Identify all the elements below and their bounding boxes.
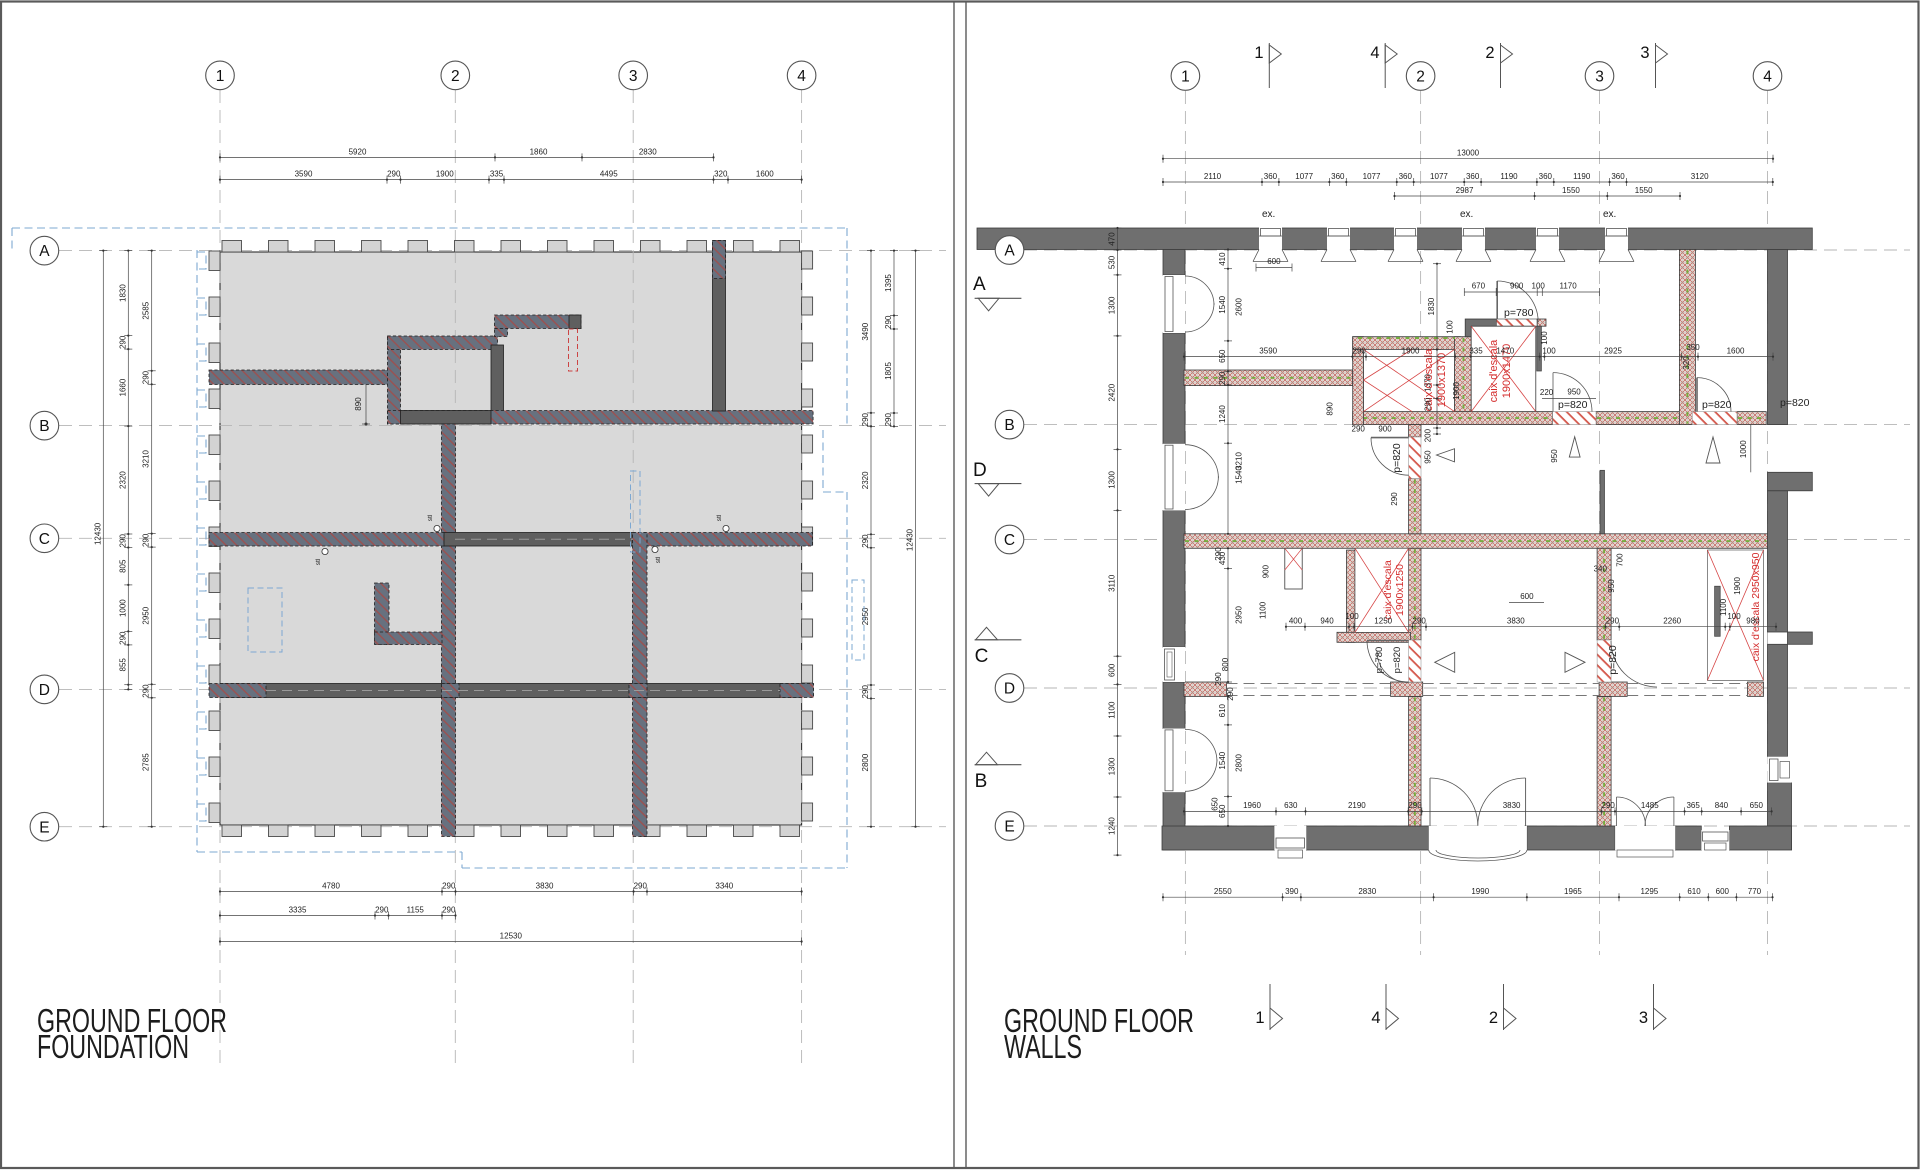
- svg-text:1990: 1990: [1471, 887, 1489, 896]
- svg-text:1077: 1077: [1363, 172, 1381, 181]
- svg-text:360: 360: [1611, 172, 1625, 181]
- svg-text:3830: 3830: [1507, 617, 1525, 626]
- svg-text:650: 650: [1218, 349, 1227, 363]
- svg-text:stl: stl: [716, 514, 723, 521]
- svg-text:100: 100: [1542, 346, 1556, 355]
- svg-text:1250: 1250: [1374, 617, 1392, 626]
- svg-text:1240: 1240: [1108, 817, 1117, 835]
- svg-text:1295: 1295: [1640, 887, 1658, 896]
- svg-text:3110: 3110: [1108, 574, 1117, 592]
- svg-text:600: 600: [1520, 592, 1534, 601]
- svg-text:1190: 1190: [1500, 172, 1518, 181]
- svg-text:1900x1250: 1900x1250: [1394, 564, 1406, 616]
- svg-text:FOUNDATION: FOUNDATION: [37, 1029, 189, 1066]
- svg-text:2420: 2420: [1108, 383, 1117, 401]
- svg-text:stl: stl: [315, 558, 322, 565]
- svg-text:1540: 1540: [1218, 751, 1227, 769]
- svg-text:610: 610: [1218, 703, 1227, 717]
- svg-text:650: 650: [1210, 797, 1219, 811]
- svg-text:335: 335: [490, 170, 504, 179]
- svg-text:290: 290: [1226, 687, 1235, 701]
- svg-text:290: 290: [634, 882, 648, 891]
- svg-text:290: 290: [118, 335, 127, 349]
- svg-text:290: 290: [1424, 397, 1433, 411]
- svg-text:1540: 1540: [1235, 466, 1244, 484]
- svg-text:D: D: [39, 682, 50, 699]
- svg-text:C: C: [1004, 532, 1015, 549]
- svg-text:p=820: p=820: [1702, 399, 1732, 411]
- svg-text:1: 1: [216, 68, 225, 85]
- svg-text:stl: stl: [655, 556, 662, 563]
- svg-text:5920: 5920: [349, 147, 367, 156]
- svg-text:290: 290: [1606, 617, 1620, 626]
- svg-text:stl: stl: [427, 514, 434, 521]
- svg-text:290: 290: [1214, 547, 1223, 561]
- svg-text:2320: 2320: [861, 471, 870, 489]
- svg-text:3830: 3830: [1503, 801, 1521, 810]
- svg-text:290: 290: [142, 370, 151, 384]
- svg-text:290: 290: [1413, 617, 1427, 626]
- svg-text:100: 100: [1727, 612, 1741, 621]
- svg-text:1805: 1805: [884, 362, 893, 380]
- svg-text:360: 360: [1264, 172, 1278, 181]
- svg-text:1540: 1540: [1218, 295, 1227, 313]
- svg-text:3120: 3120: [1691, 172, 1709, 181]
- svg-text:1: 1: [1255, 1009, 1264, 1027]
- svg-text:D: D: [1004, 681, 1015, 698]
- svg-text:E: E: [1004, 819, 1014, 836]
- svg-text:390: 390: [1285, 887, 1299, 896]
- svg-text:1485: 1485: [1641, 801, 1659, 810]
- svg-text:2: 2: [1416, 69, 1425, 86]
- svg-text:2600: 2600: [1235, 298, 1244, 316]
- svg-text:p=780: p=780: [1374, 647, 1385, 674]
- svg-text:670: 670: [1472, 281, 1486, 290]
- svg-text:320: 320: [714, 170, 728, 179]
- svg-text:290: 290: [142, 533, 151, 547]
- svg-text:2800: 2800: [1235, 754, 1244, 772]
- svg-text:950: 950: [1550, 449, 1559, 463]
- svg-text:290: 290: [1602, 801, 1616, 810]
- svg-text:290: 290: [1408, 801, 1422, 810]
- svg-text:940: 940: [1320, 617, 1334, 626]
- svg-text:900: 900: [1378, 425, 1392, 434]
- svg-text:360: 360: [1466, 172, 1480, 181]
- svg-text:630: 630: [1284, 801, 1298, 810]
- svg-text:290: 290: [861, 412, 870, 426]
- svg-text:B: B: [39, 418, 49, 435]
- svg-text:p=820: p=820: [1607, 645, 1619, 675]
- svg-text:1077: 1077: [1430, 172, 1448, 181]
- svg-text:600: 600: [1108, 663, 1117, 677]
- svg-text:900: 900: [1262, 564, 1271, 578]
- svg-text:2785: 2785: [142, 753, 151, 771]
- svg-text:A: A: [973, 274, 986, 295]
- svg-text:p=820: p=820: [1780, 397, 1810, 409]
- svg-text:600: 600: [1716, 887, 1730, 896]
- svg-text:3210: 3210: [142, 450, 151, 468]
- svg-text:caix d'escala 2950x950: caix d'escala 2950x950: [1750, 552, 1762, 661]
- svg-text:4: 4: [1370, 44, 1379, 62]
- svg-text:1100: 1100: [1259, 601, 1268, 619]
- svg-text:650: 650: [1750, 801, 1764, 810]
- svg-text:A: A: [39, 243, 50, 260]
- svg-text:A: A: [1004, 243, 1015, 260]
- svg-text:WALLS: WALLS: [1004, 1029, 1082, 1066]
- svg-text:360: 360: [1331, 172, 1345, 181]
- svg-text:290: 290: [118, 534, 127, 548]
- svg-text:2550: 2550: [1214, 887, 1232, 896]
- svg-text:600: 600: [1267, 257, 1281, 266]
- svg-text:290: 290: [375, 906, 389, 915]
- svg-text:290: 290: [1218, 371, 1227, 385]
- svg-text:1170: 1170: [1559, 281, 1577, 290]
- svg-text:2260: 2260: [1663, 617, 1681, 626]
- svg-text:290: 290: [1214, 672, 1223, 686]
- svg-text:1900: 1900: [1733, 577, 1742, 595]
- svg-text:1: 1: [1181, 69, 1190, 86]
- svg-text:290: 290: [884, 315, 893, 329]
- svg-text:290: 290: [884, 412, 893, 426]
- svg-text:3: 3: [1595, 69, 1604, 86]
- svg-text:1470: 1470: [1496, 346, 1514, 355]
- svg-text:ex.: ex.: [1460, 209, 1473, 220]
- svg-text:2830: 2830: [639, 147, 657, 156]
- svg-text:p=820: p=820: [1392, 647, 1403, 674]
- svg-text:800: 800: [1221, 657, 1230, 671]
- svg-text:1300: 1300: [1108, 296, 1117, 314]
- svg-text:3490: 3490: [861, 322, 870, 340]
- svg-text:1965: 1965: [1564, 887, 1582, 896]
- svg-text:100: 100: [1345, 612, 1359, 621]
- svg-text:290: 290: [118, 631, 127, 645]
- svg-text:290: 290: [1390, 492, 1399, 506]
- svg-text:290: 290: [442, 906, 456, 915]
- svg-text:200: 200: [1424, 428, 1433, 442]
- svg-text:290: 290: [1352, 425, 1366, 434]
- svg-text:100: 100: [1446, 320, 1455, 334]
- svg-text:900: 900: [1510, 281, 1524, 290]
- svg-text:855: 855: [118, 658, 127, 672]
- svg-text:4780: 4780: [322, 882, 340, 891]
- svg-text:3335: 3335: [289, 906, 307, 915]
- svg-text:1600: 1600: [756, 170, 774, 179]
- svg-text:2950: 2950: [1235, 606, 1244, 624]
- svg-text:770: 770: [1748, 887, 1762, 896]
- svg-text:320: 320: [1682, 356, 1691, 370]
- svg-text:980: 980: [1746, 617, 1760, 626]
- svg-text:1900: 1900: [1402, 346, 1420, 355]
- svg-text:p=820: p=820: [1391, 443, 1403, 473]
- svg-text:950: 950: [1567, 387, 1581, 396]
- svg-text:3590: 3590: [1259, 346, 1277, 355]
- svg-text:2987: 2987: [1456, 186, 1474, 195]
- svg-text:400: 400: [1289, 617, 1303, 626]
- svg-text:1550: 1550: [1635, 186, 1653, 195]
- svg-text:ex.: ex.: [1262, 209, 1275, 220]
- svg-text:D: D: [973, 460, 987, 481]
- svg-text:290: 290: [1353, 346, 1367, 355]
- svg-text:290: 290: [442, 882, 456, 891]
- svg-text:1100: 1100: [1719, 598, 1728, 616]
- svg-text:2950: 2950: [861, 607, 870, 625]
- svg-text:E: E: [39, 819, 49, 836]
- svg-text:1240: 1240: [1218, 405, 1227, 423]
- svg-text:1000: 1000: [1739, 440, 1748, 458]
- svg-text:1395: 1395: [884, 274, 893, 292]
- svg-text:12430: 12430: [93, 522, 102, 545]
- svg-text:2: 2: [451, 68, 460, 85]
- svg-text:2585: 2585: [142, 301, 151, 319]
- svg-text:2190: 2190: [1348, 801, 1366, 810]
- svg-text:335: 335: [1469, 346, 1483, 355]
- svg-text:1830: 1830: [118, 284, 127, 302]
- svg-text:610: 610: [1687, 887, 1701, 896]
- svg-text:12530: 12530: [500, 932, 523, 941]
- svg-text:290: 290: [387, 170, 401, 179]
- svg-text:890: 890: [1325, 402, 1334, 416]
- svg-text:290: 290: [142, 684, 151, 698]
- svg-text:950: 950: [1424, 450, 1433, 464]
- svg-text:1190: 1190: [1573, 172, 1591, 181]
- svg-text:365: 365: [1686, 801, 1700, 810]
- svg-text:4: 4: [1763, 69, 1772, 86]
- svg-text:2320: 2320: [118, 471, 127, 489]
- svg-text:290: 290: [861, 685, 870, 699]
- svg-text:3830: 3830: [536, 882, 554, 891]
- svg-text:100: 100: [1540, 331, 1549, 345]
- svg-text:3: 3: [1639, 1009, 1648, 1027]
- svg-text:12430: 12430: [906, 528, 915, 551]
- svg-text:B: B: [975, 771, 988, 792]
- svg-text:100: 100: [1532, 281, 1546, 290]
- svg-text:340: 340: [1594, 564, 1608, 573]
- svg-text:1: 1: [1254, 44, 1263, 62]
- svg-text:1000: 1000: [118, 599, 127, 617]
- svg-text:950: 950: [1607, 579, 1616, 593]
- svg-text:1077: 1077: [1295, 172, 1313, 181]
- svg-text:530: 530: [1108, 255, 1117, 269]
- svg-text:220: 220: [1540, 388, 1554, 397]
- svg-text:p=820: p=820: [1558, 399, 1588, 411]
- svg-text:805: 805: [118, 559, 127, 573]
- svg-text:890: 890: [354, 397, 363, 411]
- svg-text:1900: 1900: [436, 170, 454, 179]
- svg-text:B: B: [1004, 417, 1014, 434]
- svg-text:1100: 1100: [1108, 701, 1117, 719]
- svg-text:13000: 13000: [1457, 149, 1480, 158]
- svg-text:410: 410: [1218, 252, 1227, 266]
- svg-text:1660: 1660: [118, 378, 127, 396]
- svg-text:caix d'escala: caix d'escala: [1382, 560, 1394, 620]
- svg-text:2110: 2110: [1204, 172, 1222, 181]
- svg-text:470: 470: [1108, 232, 1117, 246]
- svg-text:4495: 4495: [600, 170, 618, 179]
- svg-text:1860: 1860: [530, 147, 548, 156]
- svg-text:2830: 2830: [1358, 887, 1376, 896]
- svg-text:3340: 3340: [715, 882, 733, 891]
- svg-text:1830: 1830: [1427, 297, 1436, 315]
- svg-text:360: 360: [1399, 172, 1413, 181]
- svg-text:1600: 1600: [1727, 346, 1745, 355]
- svg-text:4: 4: [1371, 1009, 1380, 1027]
- svg-text:1900: 1900: [1452, 382, 1461, 400]
- svg-text:1960: 1960: [1243, 801, 1261, 810]
- svg-text:1550: 1550: [1562, 186, 1580, 195]
- svg-text:3: 3: [629, 68, 638, 85]
- svg-text:2950: 2950: [142, 606, 151, 624]
- svg-text:p=780: p=780: [1504, 307, 1534, 319]
- svg-text:1300: 1300: [1108, 470, 1117, 488]
- svg-text:350: 350: [1686, 343, 1700, 352]
- svg-text:2: 2: [1489, 1009, 1498, 1027]
- svg-text:3590: 3590: [295, 170, 313, 179]
- svg-text:700: 700: [1615, 553, 1624, 567]
- svg-text:ex.: ex.: [1603, 209, 1616, 220]
- svg-text:3: 3: [1640, 44, 1649, 62]
- svg-text:2800: 2800: [861, 753, 870, 771]
- svg-text:C: C: [975, 646, 989, 667]
- svg-text:840: 840: [1715, 801, 1729, 810]
- svg-text:1155: 1155: [407, 906, 425, 915]
- svg-text:360: 360: [1539, 172, 1553, 181]
- svg-text:4: 4: [797, 68, 806, 85]
- svg-text:2: 2: [1485, 44, 1494, 62]
- svg-text:2925: 2925: [1604, 346, 1622, 355]
- svg-text:290: 290: [861, 534, 870, 548]
- svg-text:1300: 1300: [1108, 757, 1117, 775]
- svg-text:C: C: [39, 531, 50, 548]
- svg-text:1370: 1370: [1424, 373, 1433, 391]
